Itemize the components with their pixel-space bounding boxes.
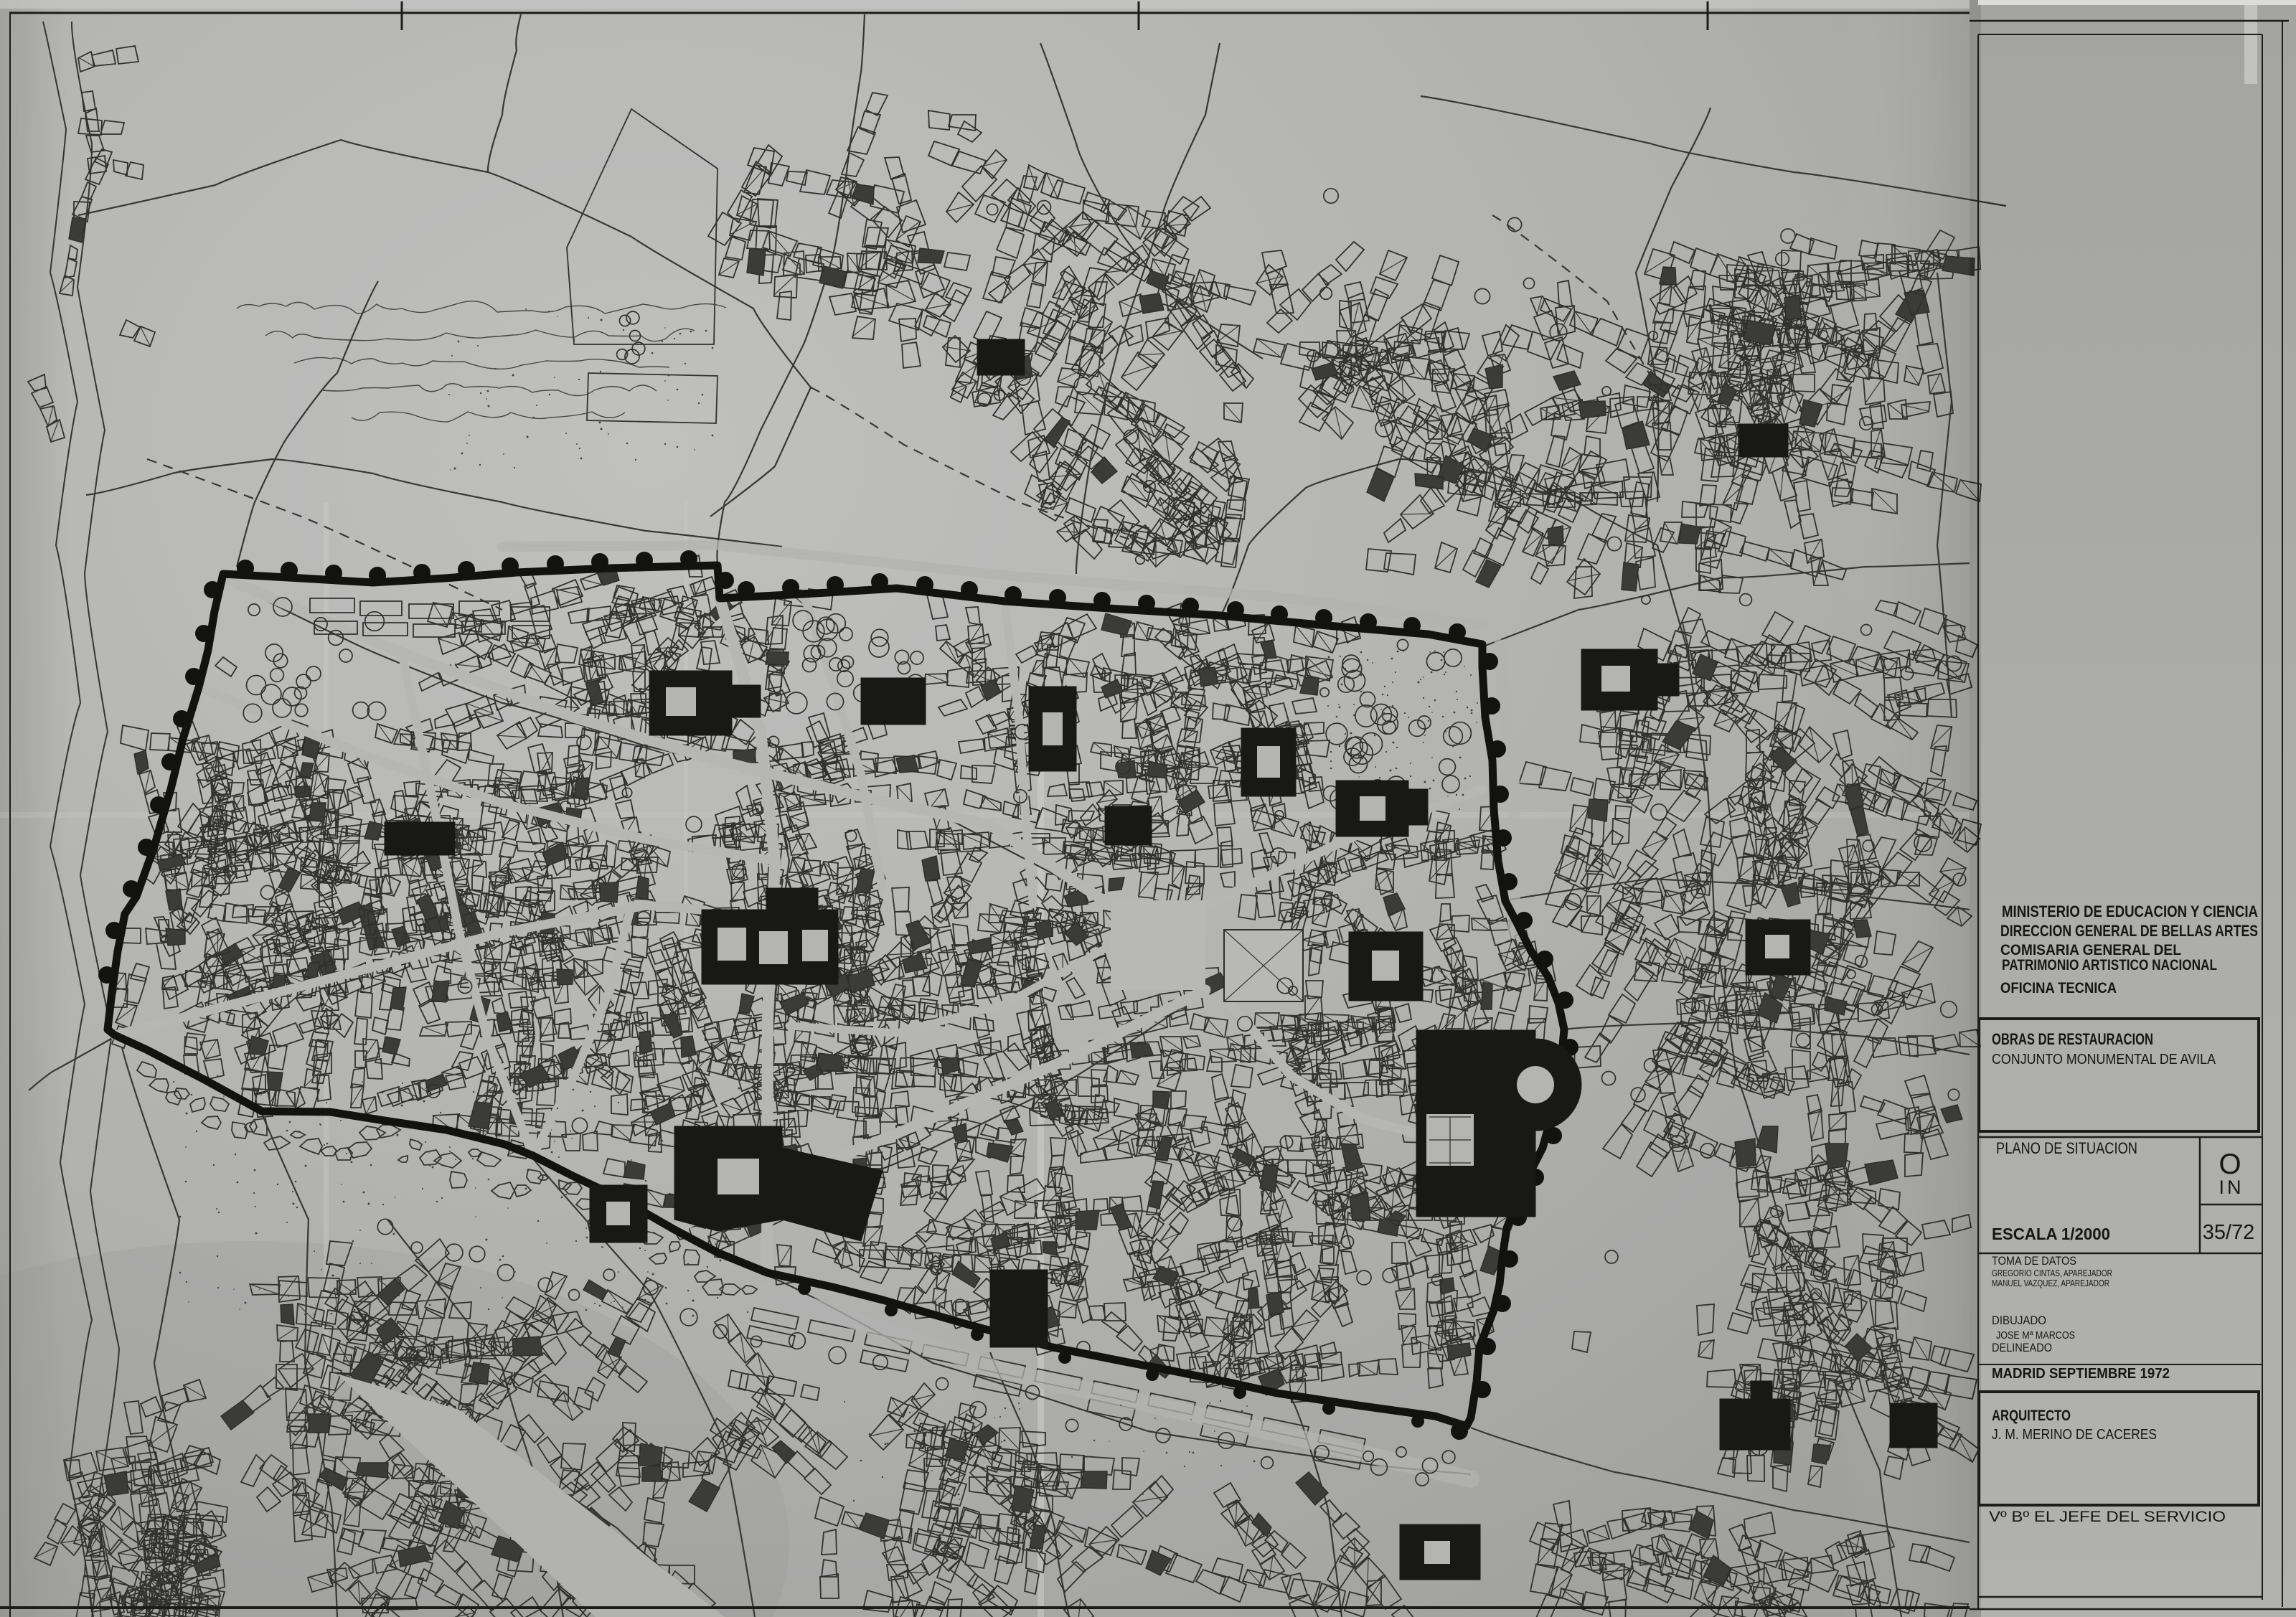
- svg-text:35/72: 35/72: [2203, 1221, 2255, 1244]
- svg-text:OBRAS DE RESTAURACION: OBRAS DE RESTAURACION: [1992, 1030, 2153, 1048]
- svg-text:J. M. MERINO DE CACERES: J. M. MERINO DE CACERES: [1992, 1427, 2157, 1443]
- svg-text:MADRID SEPTIEMBRE 1972: MADRID SEPTIEMBRE 1972: [1992, 1366, 2170, 1382]
- svg-text:ARQUITECTO: ARQUITECTO: [1992, 1408, 2071, 1424]
- svg-text:MINISTERIO DE EDUCACION Y: MINISTERIO DE EDUCACION Y CIENCIA: [2002, 902, 2258, 920]
- svg-text:OFICINA TECNICA: OFICINA TECNICA: [2000, 980, 2117, 996]
- svg-text:PLANO DE SITUACION: PLANO DE SITUACION: [1996, 1139, 2137, 1157]
- svg-text:DELINEADO: DELINEADO: [1992, 1341, 2052, 1354]
- svg-text:O: O: [2219, 1149, 2241, 1180]
- svg-text:DIRECCION GENERAL DE BELLAS: DIRECCION GENERAL DE BELLAS ARTES: [2000, 922, 2258, 940]
- svg-text:COMISARIA GENERAL DEL: COMISARIA GENERAL DEL: [2000, 942, 2181, 958]
- svg-text:MANUEL VAZQUEZ, APAREJADOR: MANUEL VAZQUEZ, APAREJADOR: [1992, 1278, 2109, 1288]
- svg-text:IN: IN: [2219, 1177, 2244, 1198]
- svg-text:TOMA DE DATOS: TOMA DE DATOS: [1992, 1254, 2076, 1268]
- svg-text:CONJUNTO MONUMENTAL DE AVIL: CONJUNTO MONUMENTAL DE AVILA: [1992, 1052, 2216, 1067]
- svg-text:ESCALA 1/2000: ESCALA 1/2000: [1992, 1225, 2110, 1243]
- svg-text:PATRIMONIO ARTISTICO NACIO: PATRIMONIO ARTISTICO NACIONAL: [2002, 957, 2217, 973]
- svg-text:DIBUJADO: DIBUJADO: [1992, 1314, 2046, 1327]
- svg-text:JOSE Mª MARCOS: JOSE Mª MARCOS: [1996, 1329, 2075, 1342]
- svg-text:Vº Bº EL JEFE DEL SER: Vº Bº EL JEFE DEL SERVICIO: [1989, 1509, 2226, 1525]
- svg-text:GREGORIO CINTAS, APAREJADOR: GREGORIO CINTAS, APAREJADOR: [1992, 1268, 2112, 1278]
